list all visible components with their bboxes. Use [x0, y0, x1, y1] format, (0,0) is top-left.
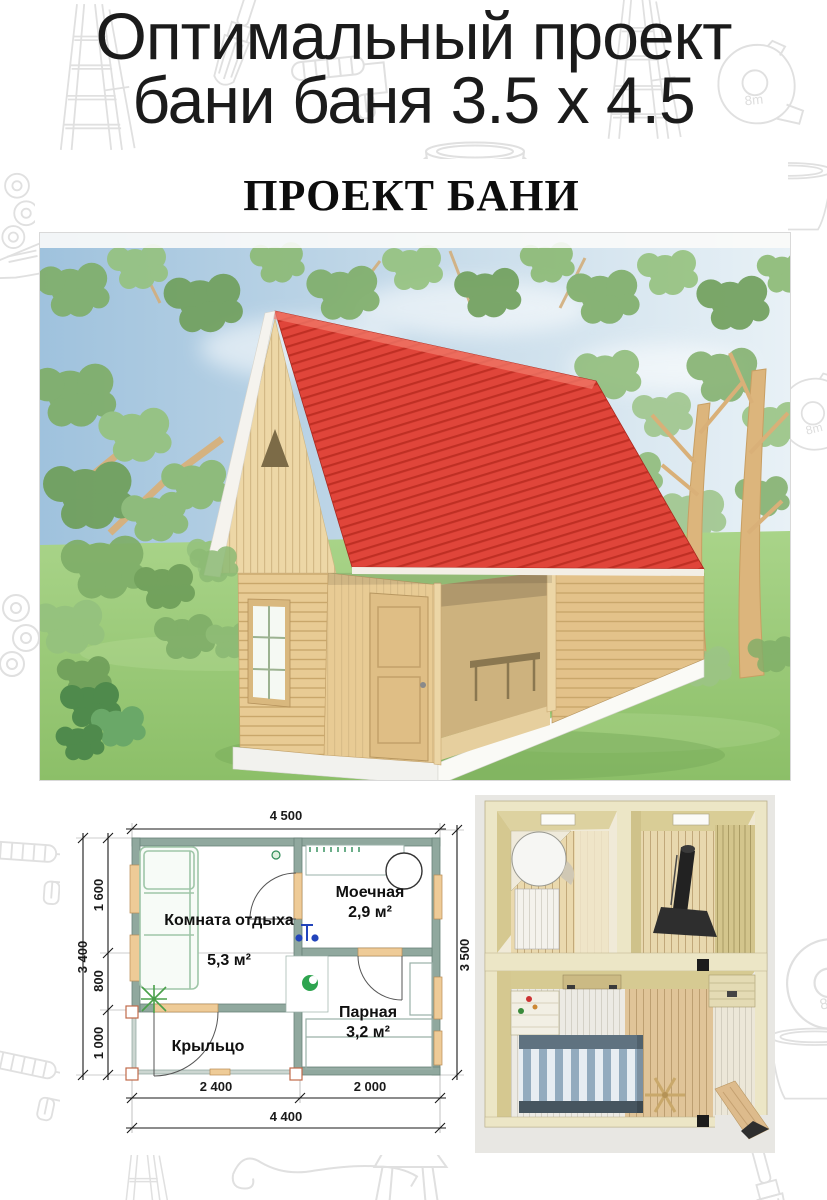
room-area-steam: 3,2 м² — [306, 1023, 430, 1042]
poster-title: Оптимальный проект бани баня 3.5 х 4.5 — [0, 4, 827, 132]
room-area-washing: 2,9 м² — [310, 903, 430, 922]
dim-bottom-seg-2400: 2 400 — [166, 1080, 266, 1094]
poster-page: 8m — [0, 0, 827, 1200]
door — [370, 593, 428, 761]
subtitle-text: ПРОЕКТ БАНИ — [243, 170, 579, 221]
dim-left-total: 3 400 — [76, 922, 90, 992]
title-line-2: бани баня 3.5 х 4.5 — [0, 68, 827, 132]
steamroom-window — [673, 814, 709, 825]
dim-bottom-total: 4 400 — [211, 1110, 361, 1124]
exterior-render-image — [40, 233, 790, 780]
dim-top-width: 4 500 — [211, 809, 361, 823]
dim-left-seg-1000: 1 000 — [92, 1008, 106, 1078]
plant-icon — [141, 985, 167, 1013]
watermark-bucket-icon — [766, 1029, 827, 1099]
corner-table — [511, 991, 559, 1035]
watermark-stool-icon — [365, 1153, 447, 1200]
door-knob — [420, 682, 426, 688]
subtitle-band: ПРОЕКТ БАНИ — [35, 159, 788, 232]
room-label-rest: Комната отдыха — [164, 911, 294, 930]
interior-tub — [512, 832, 566, 886]
corner-bench — [709, 975, 755, 1007]
interior-rest-room — [497, 971, 755, 1117]
interior-sofa — [519, 1035, 643, 1113]
room-area-rest: 5,3 м² — [164, 951, 294, 970]
room-label-steam: Парная — [306, 1003, 430, 1022]
window — [248, 599, 290, 707]
dim-bottom-seg-2000: 2 000 — [320, 1080, 420, 1094]
interior-view-image — [475, 795, 775, 1153]
dim-left-seg-800: 800 — [92, 946, 106, 1016]
room-label-porch: Крыльцо — [146, 1037, 270, 1056]
dim-left-seg-1600: 1 600 — [92, 860, 106, 930]
porch-post — [434, 583, 441, 765]
flower-icon — [272, 851, 280, 859]
room-label-washing: Моечная — [310, 883, 430, 902]
watermark-stones-icon — [2, 174, 38, 248]
watermark-tape-measure-icon — [787, 933, 827, 1029]
bottom-door-notch — [697, 1115, 709, 1127]
watermark-crowbar-icon — [233, 1159, 417, 1189]
middle-door-notch — [697, 959, 709, 971]
interior-washing-room — [497, 811, 617, 953]
porch-corner-post — [547, 569, 556, 712]
dim-right-height: 3 500 — [458, 920, 472, 990]
title-line-1: Оптимальный проект — [0, 4, 827, 68]
floor-plan: 4 500 3 400 1 600 800 1 000 3 500 2 400 … — [60, 785, 470, 1155]
watermark-ladder-icon — [118, 1151, 181, 1200]
washroom-window — [541, 814, 575, 825]
interior-steam-room — [631, 811, 755, 953]
watermark-stones-icon — [0, 595, 39, 676]
